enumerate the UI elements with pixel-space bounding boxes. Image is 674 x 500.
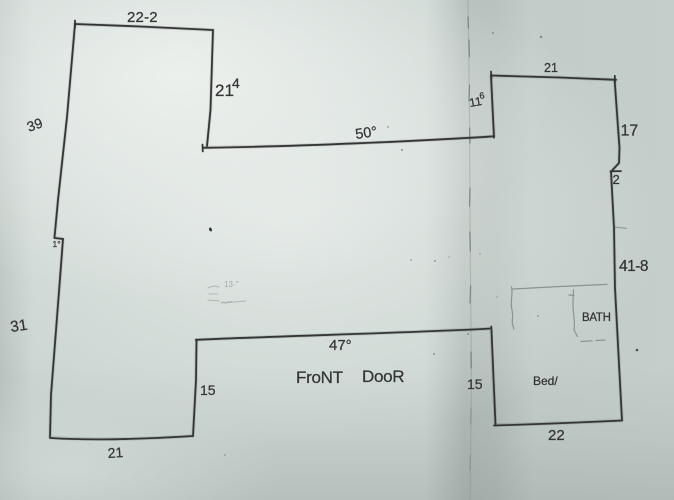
svg-text:6: 6 — [479, 90, 486, 101]
svg-text:41-8: 41-8 — [619, 258, 648, 275]
svg-text:17: 17 — [621, 123, 639, 140]
svg-text:22-2: 22-2 — [127, 9, 158, 26]
svg-text:FroNT: FroNT — [296, 368, 343, 387]
svg-text:21: 21 — [544, 61, 558, 75]
svg-text:Bed/: Bed/ — [533, 374, 558, 388]
svg-text:2: 2 — [613, 172, 620, 187]
svg-text:22: 22 — [548, 427, 565, 444]
svg-text:31: 31 — [9, 317, 28, 336]
svg-text:39: 39 — [25, 114, 45, 134]
svg-text:4: 4 — [232, 75, 240, 91]
svg-text:15: 15 — [200, 382, 216, 398]
svg-text:BATH: BATH — [582, 312, 611, 324]
svg-text:50°: 50° — [354, 124, 378, 143]
svg-text:1°: 1° — [53, 239, 61, 249]
svg-text:′′⋅′′′′: ′′⋅′′′′ — [222, 301, 233, 308]
svg-text:DooR: DooR — [362, 367, 404, 386]
svg-text:13·′′: 13·′′ — [224, 280, 239, 289]
svg-text:15: 15 — [467, 376, 483, 392]
svg-text:47°: 47° — [329, 337, 352, 354]
svg-text:21: 21 — [107, 444, 124, 461]
